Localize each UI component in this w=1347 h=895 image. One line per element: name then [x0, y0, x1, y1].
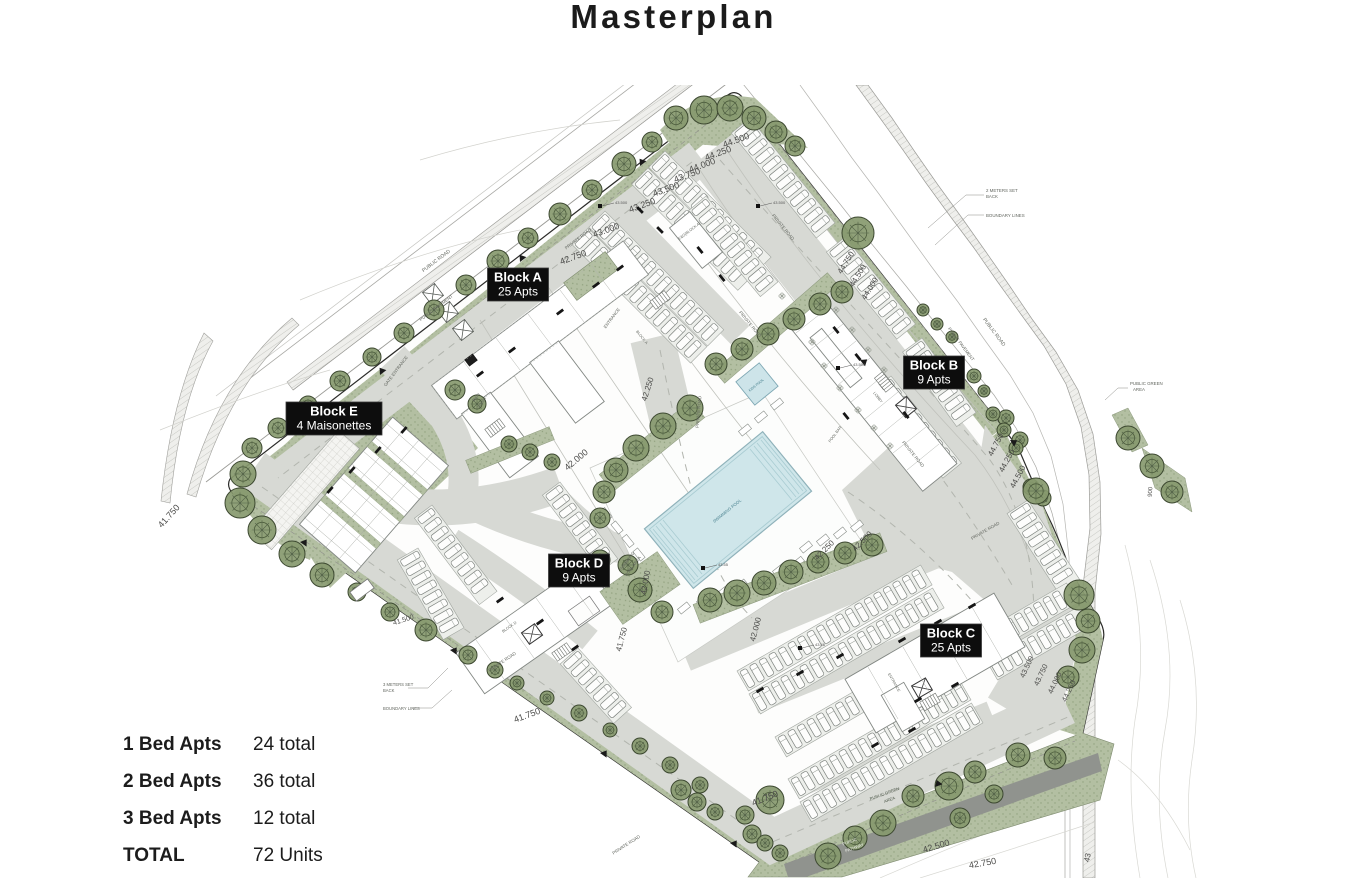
svg-text:42.750: 42.750: [968, 856, 997, 871]
svg-text:Block A: Block A: [494, 270, 543, 285]
svg-text:2 METERS SET: 2 METERS SET: [986, 188, 1018, 193]
svg-text:25 Apts: 25 Apts: [931, 641, 971, 655]
svg-text:3 METERS SET: 3 METERS SET: [383, 682, 414, 687]
svg-text:900: 900: [1148, 486, 1155, 497]
svg-text:PRIVATE ROAD: PRIVATE ROAD: [611, 834, 641, 856]
svg-text:4 Maisonettes: 4 Maisonettes: [297, 419, 372, 433]
svg-text:43.46: 43.46: [815, 642, 826, 647]
svg-text:PUBLIC GREEN: PUBLIC GREEN: [1130, 381, 1163, 386]
svg-text:PUBLIC ROAD: PUBLIC ROAD: [981, 317, 1006, 348]
svg-text:43.500: 43.500: [773, 200, 786, 205]
svg-text:BOUNDARY LINES: BOUNDARY LINES: [383, 706, 420, 711]
svg-text:BACK: BACK: [986, 194, 998, 199]
svg-text:Block C: Block C: [927, 626, 976, 641]
svg-text:43.500: 43.500: [615, 200, 628, 205]
svg-text:43.500: 43.500: [853, 362, 866, 367]
svg-text:BACK: BACK: [383, 688, 395, 693]
svg-text:43.55: 43.55: [718, 562, 729, 567]
svg-text:Block D: Block D: [555, 556, 603, 571]
svg-text:9 Apts: 9 Apts: [562, 571, 595, 585]
svg-text:41.750: 41.750: [512, 706, 541, 725]
svg-text:25 Apts: 25 Apts: [498, 285, 538, 299]
svg-text:AREA: AREA: [1133, 387, 1145, 392]
svg-text:9 Apts: 9 Apts: [917, 373, 950, 387]
svg-text:41.750: 41.750: [156, 502, 182, 529]
svg-text:Block B: Block B: [910, 358, 958, 373]
svg-text:Block E: Block E: [310, 404, 358, 419]
svg-text:BOUNDARY LINES: BOUNDARY LINES: [986, 213, 1025, 218]
